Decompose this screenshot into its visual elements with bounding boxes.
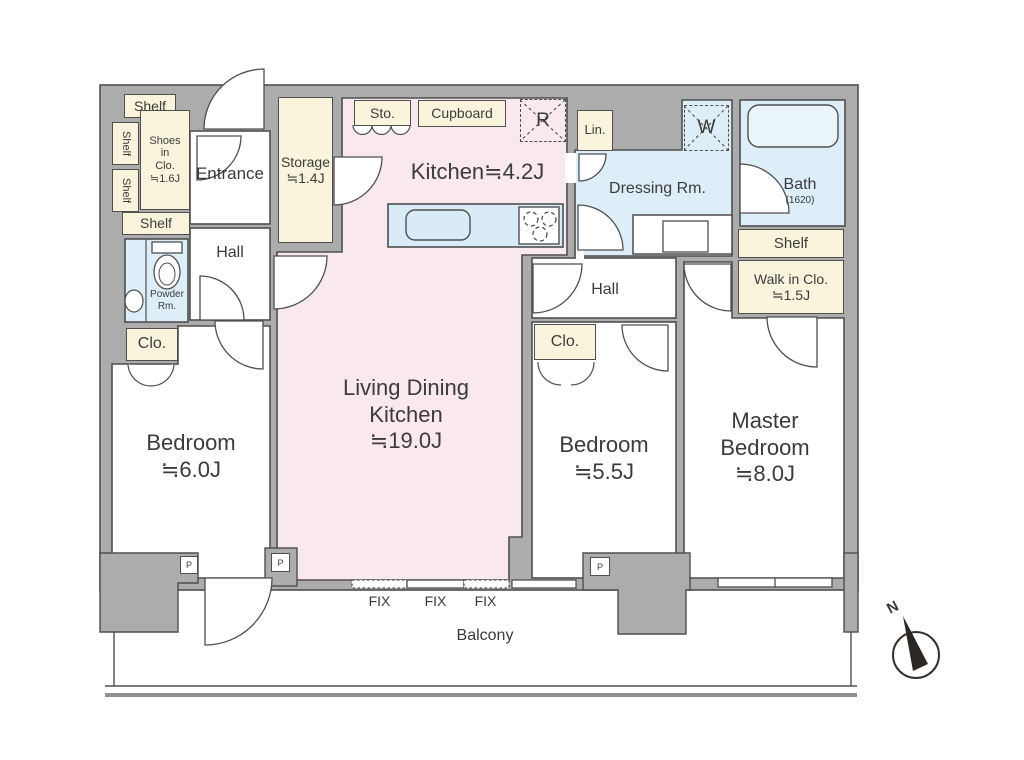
fix-window [464, 580, 509, 588]
washer-space: W [684, 105, 729, 151]
compass-icon [893, 616, 939, 678]
closet-box: Clo. [126, 328, 178, 361]
fix-window [352, 580, 407, 588]
fix-window-label: FIX [407, 592, 464, 612]
hall-right-label: Hall [560, 278, 650, 302]
powder-room-label: PowderRm. [146, 288, 188, 314]
shelf-box: Shelf [112, 122, 139, 165]
walk-in-closet-box: Walk in Clo.≒1.5J [738, 260, 844, 314]
refrigerator-space: R [520, 99, 566, 142]
shoes-closet-box: ShoesinClo.≒1.6J [140, 110, 190, 210]
toilet-bowl [154, 255, 180, 289]
floorplan: Shelf Shelf Shelf ShoesinClo.≒1.6J Shelf… [0, 0, 1024, 760]
sliding-window [407, 580, 464, 588]
pillar [844, 553, 858, 632]
linen-box: Lin. [577, 110, 613, 151]
pillar-marker: P [271, 553, 290, 572]
master-bedroom-label: MasterBedroom≒8.0J [692, 406, 838, 490]
toilet-tank [152, 242, 182, 253]
shelf-box: Shelf [122, 212, 190, 235]
bedroom-mid-window [512, 580, 576, 588]
balcony-door [205, 578, 272, 645]
bathtub [748, 105, 838, 147]
shelf-box: Shelf [738, 229, 844, 258]
dressing-room-label: Dressing Rm. [585, 177, 730, 201]
shelf-box: Shelf [112, 169, 139, 212]
kitchen-label: Kitchen≒4.2J [390, 158, 565, 186]
bedroom-left-label: Bedroom≒6.0J [120, 428, 262, 486]
powder-sink [125, 290, 143, 312]
entrance-label: Entrance [188, 162, 272, 186]
bath-label: Bath(1620) [766, 170, 834, 212]
fix-window-label: FIX [352, 592, 407, 612]
ldk-label: Living DiningKitchen≒19.0J [320, 372, 492, 458]
hall-left-label: Hall [190, 241, 270, 265]
bedroom-mid-label: Bedroom≒5.5J [532, 430, 676, 488]
balcony-label: Balcony [440, 625, 530, 647]
pillar-marker: P [180, 556, 198, 574]
storage-box: Storage≒1.4J [278, 97, 333, 243]
sto-box: Sto. [354, 100, 411, 126]
pillar-marker: P [590, 557, 610, 576]
closet-box: Clo. [534, 324, 596, 360]
fix-window-label: FIX [463, 592, 508, 612]
front-door [204, 69, 264, 129]
cupboard-box: Cupboard [418, 100, 506, 127]
